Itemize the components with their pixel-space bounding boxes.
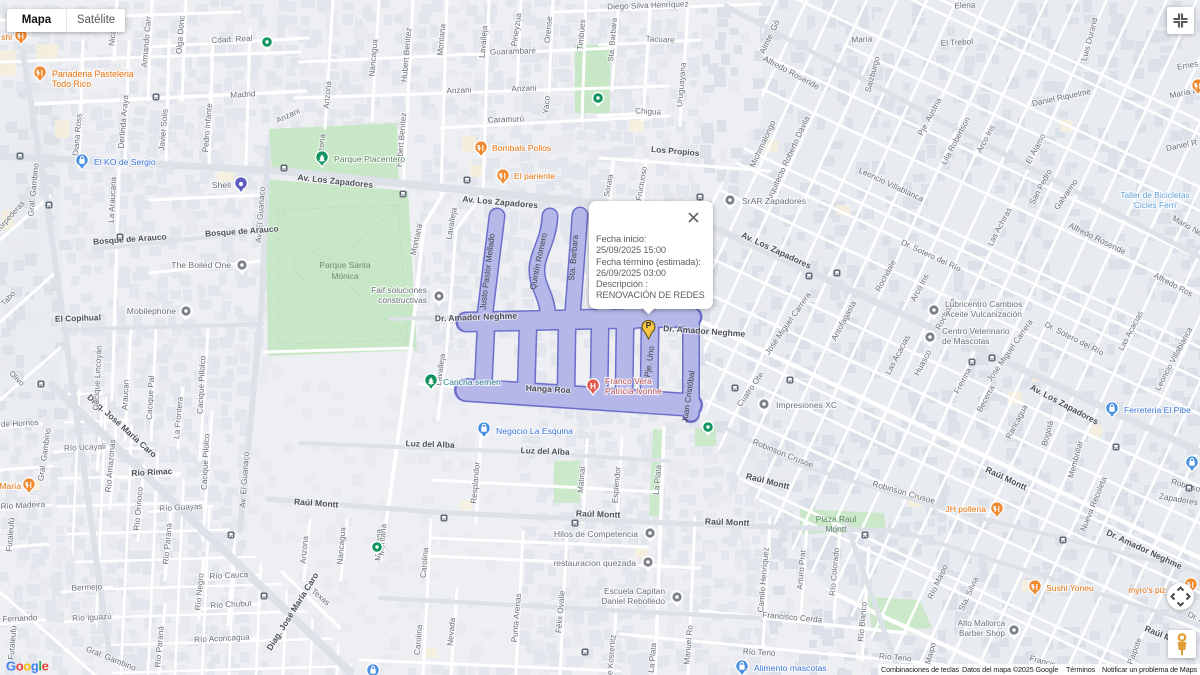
svg-text:Alto Mallorca: Alto Mallorca [958,619,1006,628]
svg-text:Faif soluciones: Faif soluciones [371,285,427,295]
svg-text:El KO de Sergio: El KO de Sergio [94,157,156,167]
svg-text:SrAR Zapadores: SrAR Zapadores [742,196,806,206]
svg-text:P: P [646,320,652,330]
svg-text:shi: shi [1,32,12,42]
svg-text:H: H [590,382,596,391]
svg-text:María: María [0,481,21,491]
svg-text:Mobilephone: Mobilephone [127,306,176,316]
svg-text:Hilos de Competencia: Hilos de Competencia [554,529,638,539]
svg-text:Impresiones XC: Impresiones XC [776,400,837,410]
svg-text:JH polleria: JH polleria [945,504,986,514]
svg-text:El pariente: El pariente [514,171,555,181]
svg-text:Ferreteria El Pibe: Ferreteria El Pibe [1124,405,1191,415]
svg-text:'Cicles Ferri': 'Cicles Ferri' [1132,200,1178,210]
svg-text:Sushi Yoneu: Sushi Yoneu [1046,583,1094,593]
svg-text:Franco Vera: Franco Vera [605,376,652,386]
svg-text:The Boiled One: The Boiled One [171,260,231,270]
svg-text:Shell: Shell [212,180,231,190]
svg-text:Negocio La Esquina: Negocio La Esquina [496,426,573,436]
svg-text:Alimento mascotas: Alimento mascotas [754,663,827,673]
svg-text:Aceite Vulcanización: Aceite Vulcanización [945,309,1022,319]
svg-text:Panaderia Pasteleria: Panaderia Pasteleria [52,69,134,79]
svg-text:Patricia Ivonne: Patricia Ivonne [605,386,662,396]
svg-text:Centro Veterinario: Centro Veterinario [942,326,1010,336]
svg-text:Barber Shop: Barber Shop [959,629,1005,638]
svg-text:de Mascotas: de Mascotas [942,336,989,346]
svg-text:Bombals Pollos: Bombals Pollos [492,143,551,153]
svg-text:Escuela Capitan: Escuela Capitan [604,586,665,596]
svg-text:Taller de Bicicletas: Taller de Bicicletas [1120,190,1189,200]
svg-text:Lubricentro Cambios: Lubricentro Cambios [945,299,1022,309]
svg-text:Todo Rico: Todo Rico [52,79,91,89]
svg-text:constructivas: constructivas [378,295,427,305]
svg-text:Daniel Rebolledo: Daniel Rebolledo [601,596,665,606]
svg-text:Parque Placentero: Parque Placentero [334,154,405,164]
svg-text:restauracion quezada: restauracion quezada [553,558,636,568]
svg-text:Cancha semen: Cancha semen [443,377,501,387]
svg-text:Google: Google [6,659,49,674]
